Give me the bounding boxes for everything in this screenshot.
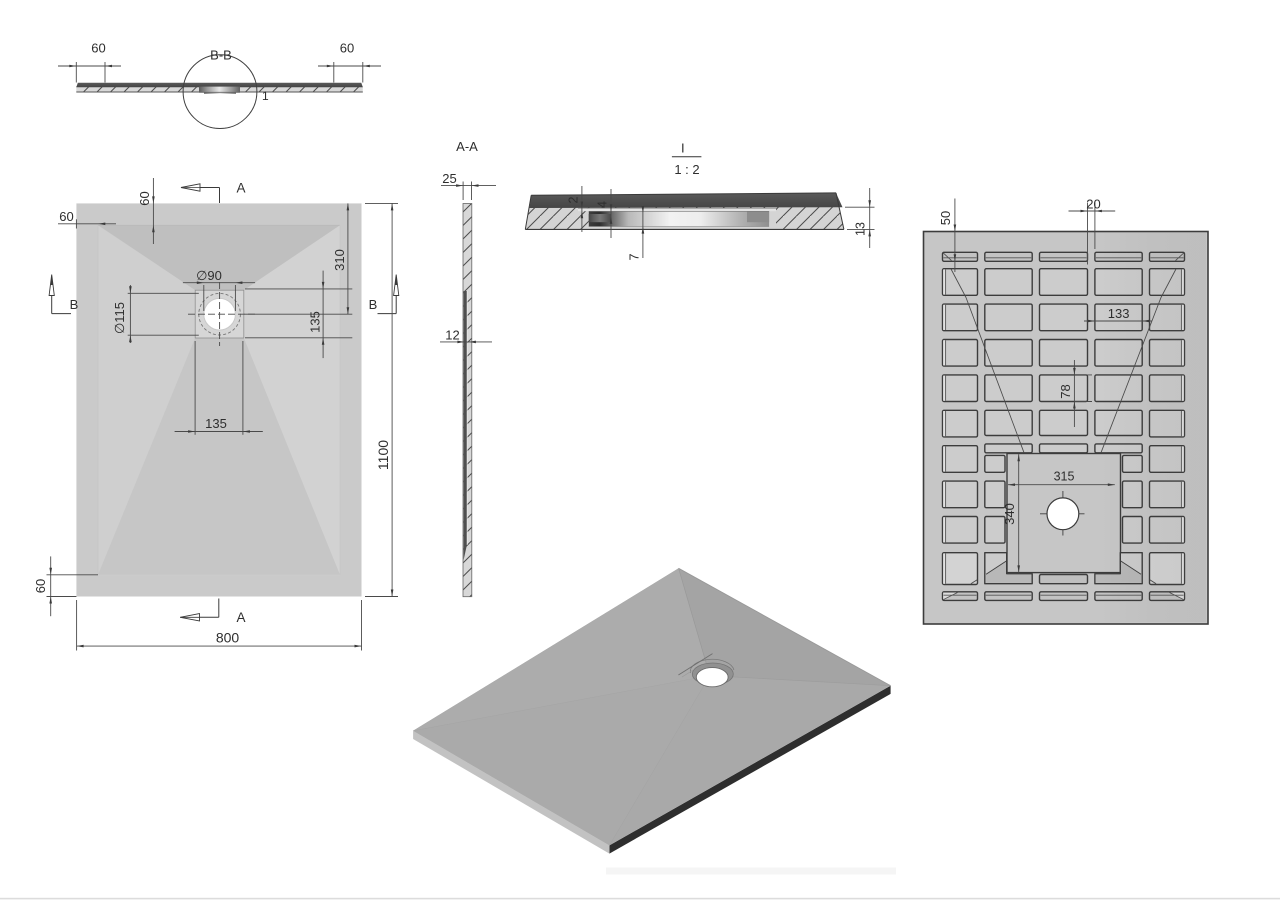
svg-text:133: 133 (1108, 306, 1130, 321)
svg-text:B: B (70, 297, 79, 312)
svg-text:12: 12 (445, 328, 459, 343)
svg-text:60: 60 (340, 41, 354, 56)
svg-text:50: 50 (938, 211, 953, 225)
svg-text:135: 135 (308, 311, 323, 333)
svg-text:7: 7 (628, 253, 642, 260)
svg-text:13: 13 (854, 222, 868, 236)
svg-text:60: 60 (137, 191, 152, 205)
svg-text:A-A: A-A (456, 139, 478, 154)
svg-text:340: 340 (1002, 503, 1017, 525)
svg-text:78: 78 (1058, 384, 1073, 398)
svg-text:B: B (369, 297, 378, 312)
svg-text:1: 1 (262, 89, 269, 103)
svg-text:25: 25 (442, 171, 456, 186)
svg-text:A: A (236, 181, 245, 196)
svg-text:20: 20 (1086, 197, 1100, 212)
svg-text:I: I (681, 141, 685, 156)
svg-text:135: 135 (205, 416, 227, 431)
svg-text:60: 60 (59, 209, 73, 224)
svg-text:4: 4 (596, 201, 610, 208)
svg-text:60: 60 (91, 41, 105, 56)
svg-text:310: 310 (332, 249, 347, 271)
svg-text:800: 800 (216, 630, 240, 646)
svg-text:315: 315 (1054, 470, 1075, 484)
svg-text:B-B: B-B (210, 48, 232, 63)
svg-text:∅90: ∅90 (196, 268, 222, 283)
svg-text:∅115: ∅115 (112, 302, 127, 334)
svg-text:2: 2 (567, 196, 581, 203)
svg-text:A: A (236, 610, 245, 625)
svg-text:60: 60 (33, 579, 48, 593)
svg-text:1 : 2: 1 : 2 (674, 162, 699, 177)
svg-text:1100: 1100 (375, 440, 391, 470)
